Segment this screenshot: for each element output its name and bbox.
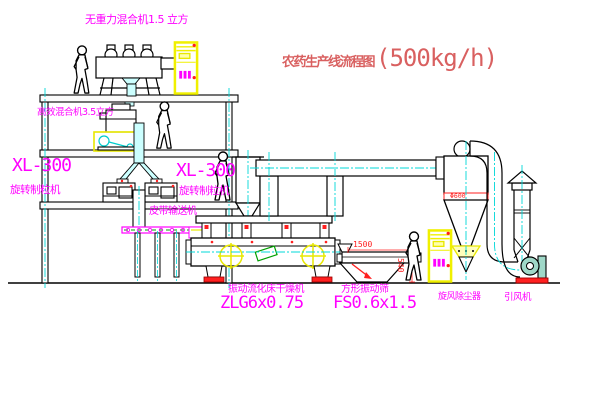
granulator-right: [145, 183, 177, 202]
fluid-bed-dryer: [186, 216, 340, 282]
label-dryer-model: ZLG6x0.75: [220, 295, 303, 312]
label-gravity-mixer: 无重力混合机1.5 立方: [85, 14, 188, 25]
person-third-floor: [157, 102, 171, 148]
dim-cyclone-diameter: Φ600: [450, 193, 466, 200]
label-fan: 引风机: [504, 293, 531, 303]
label-cyclone: 旋风除尘器: [438, 293, 481, 302]
discharge-duct: [133, 186, 145, 232]
label-sieve-model: FS0.6x1.5: [333, 295, 416, 312]
exhaust-stack: [508, 165, 536, 268]
induced-draft-fan: [516, 256, 548, 283]
drawing-title: 农药生产线流程图 (500kg/h): [282, 44, 497, 72]
control-cabinet-top: [175, 42, 197, 93]
exhaust-duct-network: [250, 152, 448, 222]
title-capacity: (500kg/h): [376, 44, 497, 72]
title-text: 农药生产线流程图: [282, 51, 374, 70]
label-granulator-center-model: XL-300: [176, 162, 235, 180]
label-granulator-left-model: XL-300: [12, 157, 71, 175]
person-top-floor: [74, 46, 89, 93]
dim-sieve-height: 540: [396, 258, 404, 272]
label-granulator-center-name: 旋转制粒机: [179, 186, 229, 197]
person-ground: [406, 232, 421, 280]
control-cabinet-ground: [429, 230, 451, 281]
label-high-mixer: 高效混合机3.5立方: [37, 108, 114, 118]
label-belt-conveyor: 皮带输送机: [149, 207, 197, 217]
label-granulator-left-name: 旋转制粒机: [10, 185, 60, 196]
gravity-free-mixer: [96, 45, 175, 96]
granulator-left: [103, 183, 135, 202]
dim-sieve-width: 1500: [353, 241, 372, 249]
pesticide-line-drawing: 农药生产线流程图 (500kg/h) 无重力混合机1.5 立方 高效混合机3.5…: [0, 0, 600, 403]
